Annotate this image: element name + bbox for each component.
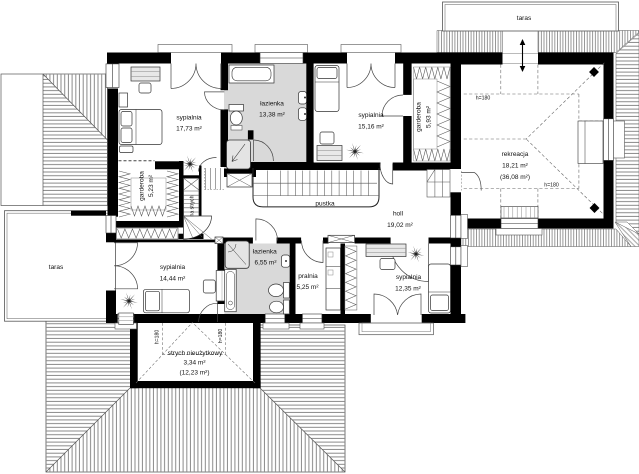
- svg-text:5,93 m²: 5,93 m²: [426, 105, 433, 128]
- svg-text:h=180: h=180: [476, 96, 491, 102]
- svg-text:12,35 m²: 12,35 m²: [395, 286, 421, 293]
- svg-text:pustka: pustka: [315, 201, 335, 208]
- svg-text:h=180: h=180: [218, 329, 224, 344]
- svg-text:h=180: h=180: [155, 330, 161, 345]
- svg-text:14,44 m²: 14,44 m²: [160, 276, 186, 283]
- svg-text:18,21 m²: 18,21 m²: [502, 163, 528, 170]
- svg-text:sypialnia: sypialnia: [358, 112, 384, 119]
- svg-text:(12,23 m²): (12,23 m²): [180, 370, 210, 377]
- svg-text:sypialnia: sypialnia: [160, 264, 186, 271]
- svg-text:3,34 m²: 3,34 m²: [183, 360, 206, 367]
- svg-text:taras: taras: [49, 264, 64, 271]
- svg-text:łazienka: łazienka: [260, 101, 284, 108]
- svg-text:na strych: na strych: [190, 195, 196, 216]
- svg-text:13,38 m²: 13,38 m²: [259, 112, 285, 119]
- svg-text:garderoba: garderoba: [139, 171, 146, 201]
- svg-text:(36,08 m²): (36,08 m²): [500, 174, 530, 181]
- svg-text:15,16 m²: 15,16 m²: [358, 124, 384, 131]
- svg-text:garderoba: garderoba: [416, 102, 423, 132]
- svg-text:h=180: h=180: [544, 183, 559, 189]
- svg-text:taras: taras: [517, 15, 532, 22]
- svg-text:5,23 m²: 5,23 m²: [148, 174, 155, 197]
- svg-text:17,73 m²: 17,73 m²: [176, 126, 202, 133]
- svg-text:rekreacja: rekreacja: [502, 151, 529, 158]
- svg-text:pralnia: pralnia: [298, 273, 318, 280]
- svg-text:6,55 m²: 6,55 m²: [254, 260, 277, 267]
- svg-text:5,25 m²: 5,25 m²: [296, 284, 319, 291]
- svg-text:19,02 m²: 19,02 m²: [387, 222, 413, 229]
- svg-text:łazienka: łazienka: [253, 249, 277, 256]
- svg-text:holl: holl: [393, 211, 404, 218]
- svg-text:sypialnia: sypialnia: [176, 115, 202, 122]
- svg-text:sypialnia: sypialnia: [396, 274, 422, 281]
- svg-text:strych nieużytkowy: strych nieużytkowy: [168, 350, 223, 357]
